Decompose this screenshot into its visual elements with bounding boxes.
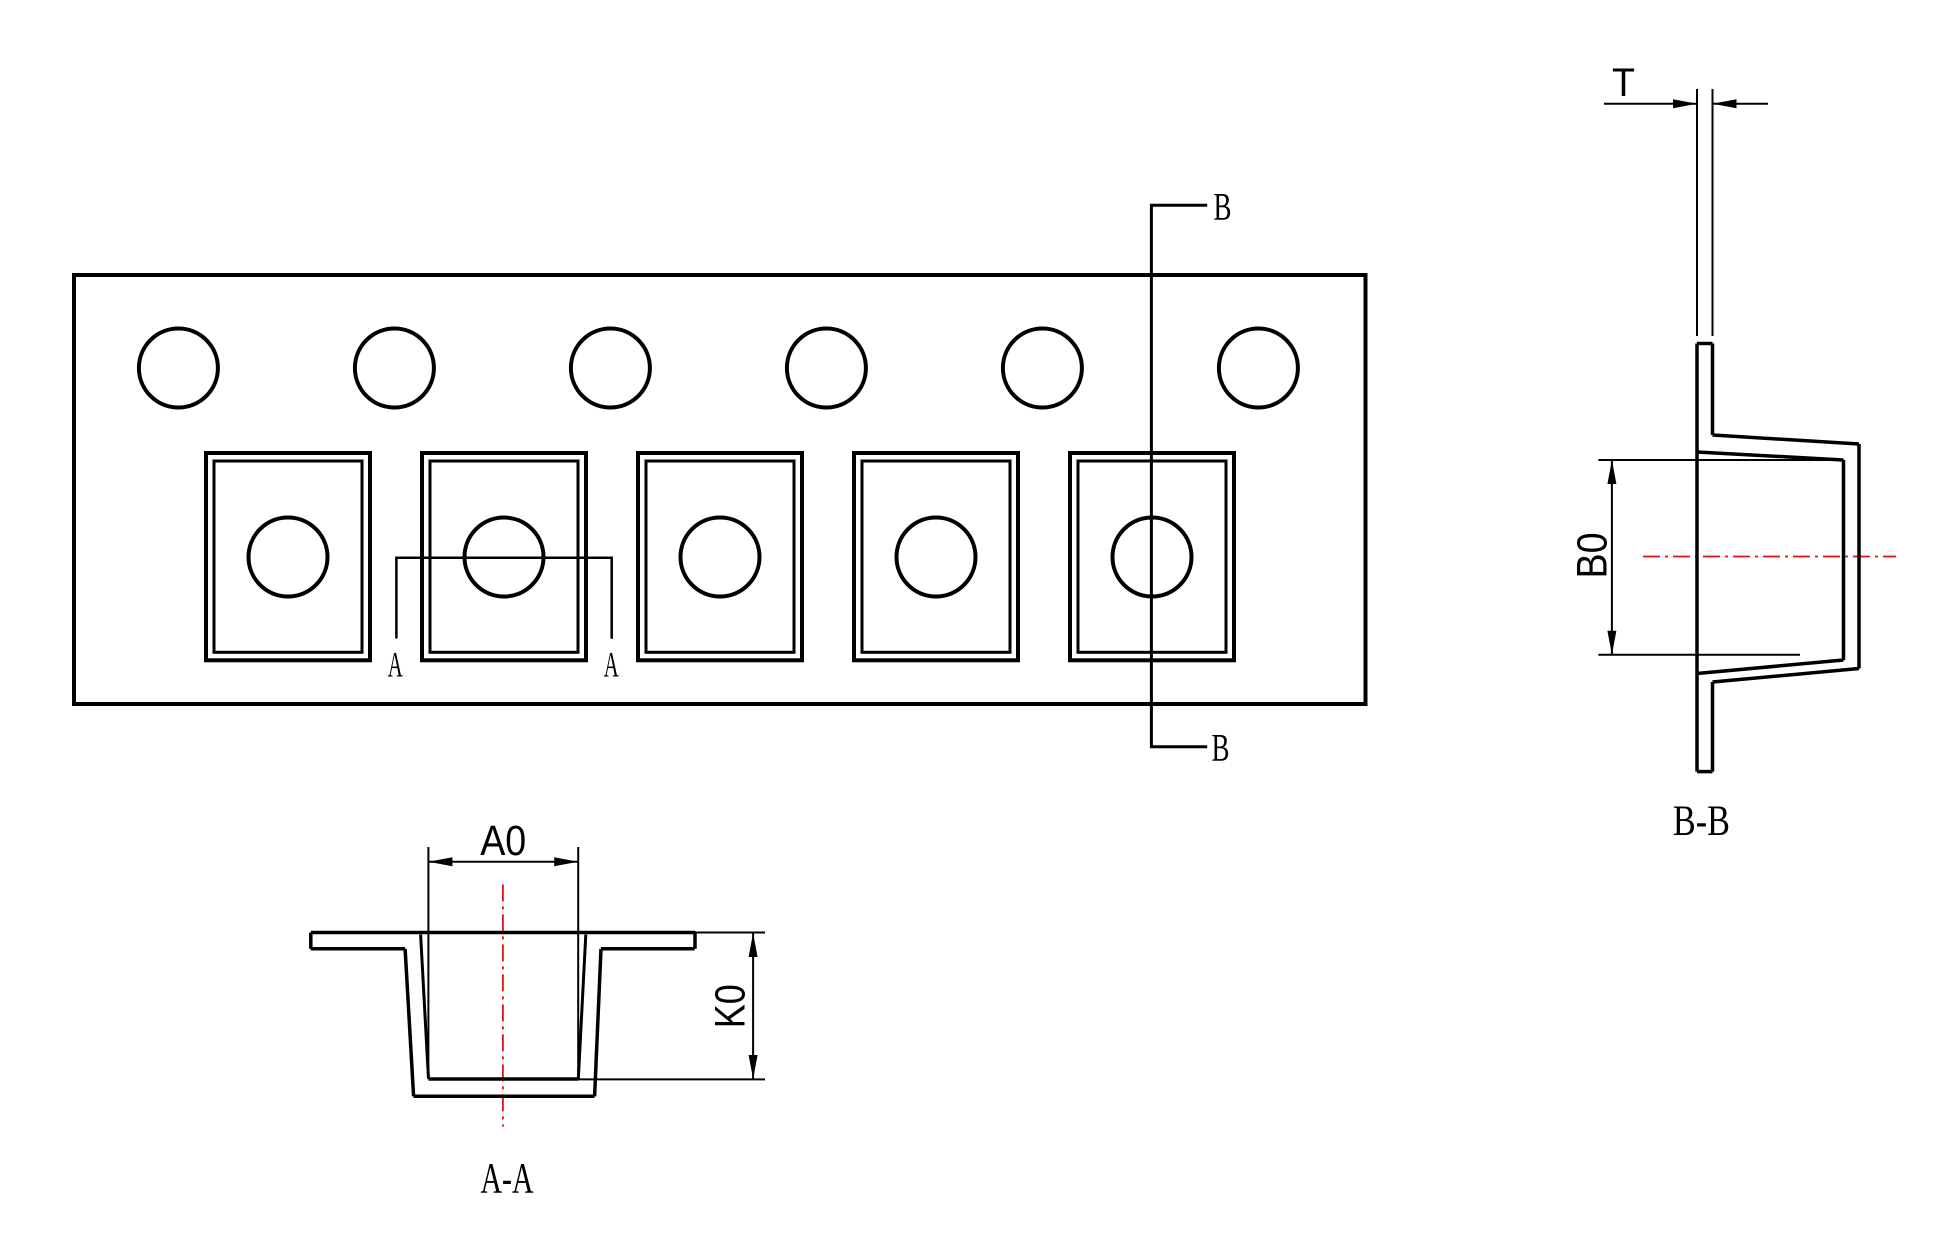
svg-text:B0: B0 xyxy=(1568,533,1616,579)
svg-text:A0: A0 xyxy=(480,817,526,865)
svg-text:B-B: B-B xyxy=(1673,798,1730,845)
svg-text:A: A xyxy=(388,645,403,685)
svg-text:K0: K0 xyxy=(707,984,755,1028)
svg-text:B: B xyxy=(1212,727,1230,770)
svg-text:T: T xyxy=(1612,61,1635,105)
svg-text:A-A: A-A xyxy=(481,1156,534,1203)
svg-text:B: B xyxy=(1214,185,1232,228)
svg-text:A: A xyxy=(604,645,619,685)
